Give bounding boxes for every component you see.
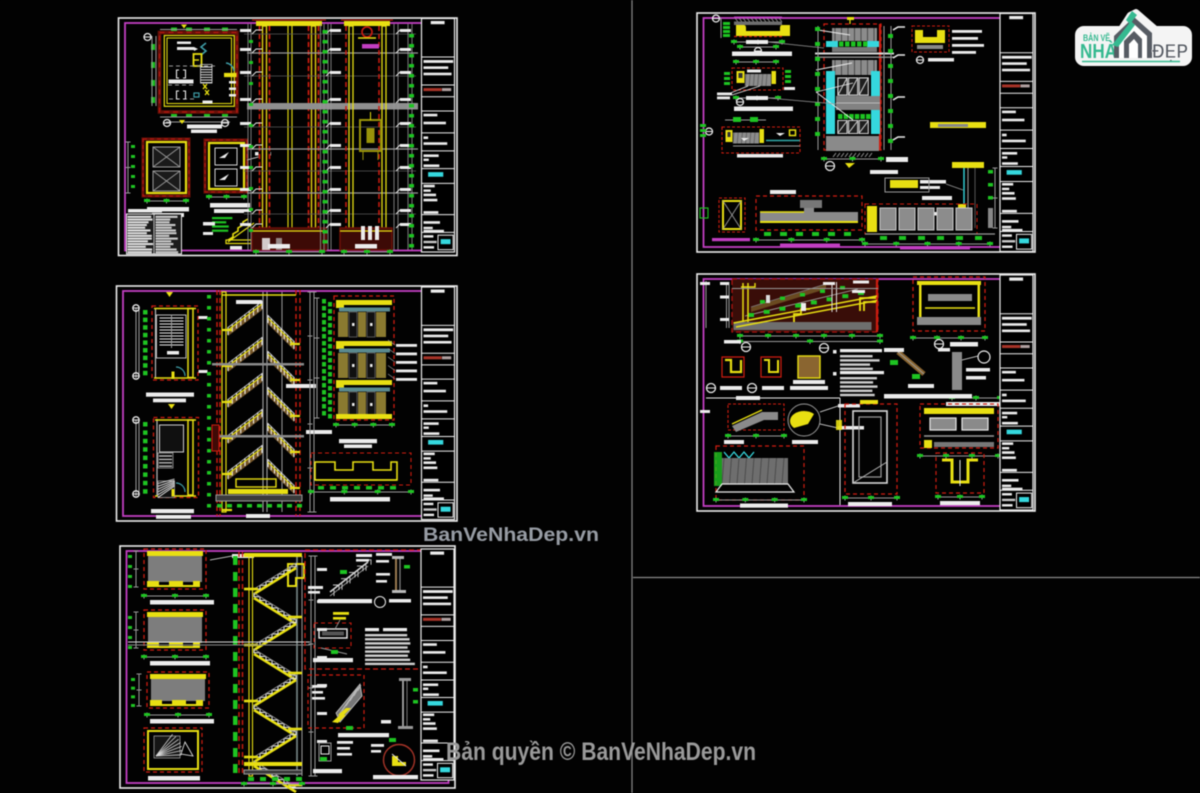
svg-text:ĐẸP: ĐẸP bbox=[1152, 41, 1188, 63]
svg-text:Bản quyền © BanVeNhaDep.vn: Bản quyền © BanVeNhaDep.vn bbox=[446, 738, 756, 766]
svg-text:NHÀ: NHÀ bbox=[1080, 40, 1117, 63]
svg-text:BanVeNhaDep.vn: BanVeNhaDep.vn bbox=[423, 524, 599, 546]
